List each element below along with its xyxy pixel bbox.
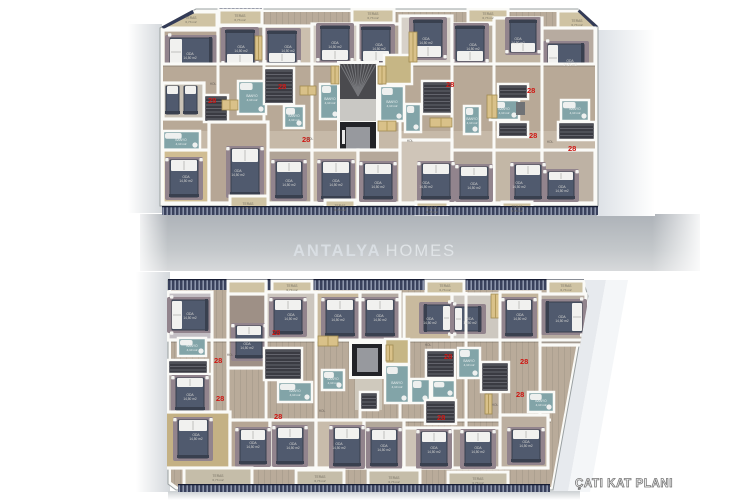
svg-text:14,50 m2: 14,50 m2 xyxy=(466,47,480,51)
svg-text:6,73 m2: 6,73 m2 xyxy=(286,288,297,292)
svg-text:HOL: HOL xyxy=(307,137,314,141)
svg-text:14,50 m2: 14,50 m2 xyxy=(372,47,386,51)
svg-text:4,10 m2: 4,10 m2 xyxy=(499,111,510,115)
svg-text:6,73 m2: 6,73 m2 xyxy=(367,16,378,20)
svg-text:HOL: HOL xyxy=(425,343,432,347)
svg-text:6,73 m2: 6,73 m2 xyxy=(314,479,325,483)
svg-text:28: 28 xyxy=(216,394,224,403)
svg-text:14,50 m2: 14,50 m2 xyxy=(234,49,248,53)
svg-text:28: 28 xyxy=(516,390,524,399)
svg-text:4,10 m2: 4,10 m2 xyxy=(387,104,398,108)
svg-text:14,50 m2: 14,50 m2 xyxy=(183,56,197,60)
svg-text:6,73 m2: 6,73 m2 xyxy=(439,288,450,292)
svg-text:14,50 m2: 14,50 m2 xyxy=(471,450,485,454)
svg-text:14,50 m2: 14,50 m2 xyxy=(419,41,433,45)
svg-text:14,50 m2: 14,50 m2 xyxy=(183,397,197,401)
svg-text:14,50 m2: 14,50 m2 xyxy=(332,446,346,450)
svg-text:14,50 m2: 14,50 m2 xyxy=(329,183,343,187)
svg-text:6,73 m2: 6,73 m2 xyxy=(571,23,582,27)
svg-text:4,10 m2: 4,10 m2 xyxy=(570,111,581,115)
svg-text:6,73 m2: 6,73 m2 xyxy=(511,209,522,213)
svg-text:14,50 m2: 14,50 m2 xyxy=(281,49,295,53)
svg-text:14,50 m2: 14,50 m2 xyxy=(427,450,441,454)
svg-text:28: 28 xyxy=(437,413,445,422)
svg-text:6,73 m2: 6,73 m2 xyxy=(212,478,223,482)
svg-text:6,73 m2: 6,73 m2 xyxy=(472,481,483,485)
svg-text:14,50 m2: 14,50 m2 xyxy=(377,448,391,452)
svg-text:28: 28 xyxy=(272,328,280,337)
svg-text:6,73 m2: 6,73 m2 xyxy=(388,480,399,484)
svg-text:14,50 m2: 14,50 m2 xyxy=(513,317,527,321)
svg-text:14,50 m2: 14,50 m2 xyxy=(328,45,342,49)
svg-text:28: 28 xyxy=(208,96,216,105)
svg-text:4,10 m2: 4,10 m2 xyxy=(325,101,336,105)
svg-text:14,50 m2: 14,50 m2 xyxy=(511,41,525,45)
svg-text:14,50 m2: 14,50 m2 xyxy=(286,446,300,450)
svg-text:14,50 m2: 14,50 m2 xyxy=(512,185,526,189)
svg-text:14,50 m2: 14,50 m2 xyxy=(189,437,203,441)
svg-text:4,10 m2: 4,10 m2 xyxy=(328,381,339,385)
svg-text:28: 28 xyxy=(520,357,528,366)
svg-text:4,10 m2: 4,10 m2 xyxy=(176,142,187,146)
svg-text:28: 28 xyxy=(278,82,286,91)
svg-text:6,73 m2: 6,73 m2 xyxy=(185,20,196,24)
svg-text:4,10 m2: 4,10 m2 xyxy=(467,121,478,125)
svg-text:14,50 m2: 14,50 m2 xyxy=(563,63,577,67)
svg-text:6,73 m2: 6,73 m2 xyxy=(560,288,571,292)
svg-text:HOL: HOL xyxy=(407,139,414,143)
svg-text:14,50 m2: 14,50 m2 xyxy=(371,185,385,189)
svg-text:14,50 m2: 14,50 m2 xyxy=(240,346,254,350)
svg-text:14,50 m2: 14,50 m2 xyxy=(231,173,245,177)
svg-text:28: 28 xyxy=(568,144,576,153)
svg-text:HOL: HOL xyxy=(547,140,554,144)
svg-text:ANTALYAHOMES: ANTALYAHOMES xyxy=(293,242,456,260)
svg-text:28: 28 xyxy=(529,131,537,140)
svg-text:HOL: HOL xyxy=(492,403,499,407)
svg-text:4,10 m2: 4,10 m2 xyxy=(536,403,547,407)
svg-text:6,73 m2: 6,73 m2 xyxy=(482,16,493,20)
svg-text:4,10 m2: 4,10 m2 xyxy=(187,348,198,352)
svg-text:HOL: HOL xyxy=(319,409,326,413)
svg-text:28: 28 xyxy=(444,352,452,361)
svg-text:14,50 m2: 14,50 m2 xyxy=(373,318,387,322)
svg-text:14,50 m2: 14,50 m2 xyxy=(555,319,569,323)
svg-text:28: 28 xyxy=(446,80,454,89)
svg-text:28: 28 xyxy=(274,412,282,421)
svg-text:6,73 m2: 6,73 m2 xyxy=(426,210,437,214)
svg-text:14,50 m2: 14,50 m2 xyxy=(282,183,296,187)
svg-text:4,10 m2: 4,10 m2 xyxy=(289,118,300,122)
svg-text:6,73 m2: 6,73 m2 xyxy=(334,208,345,212)
svg-text:HOL: HOL xyxy=(227,353,234,357)
svg-text:14,50 m2: 14,50 m2 xyxy=(179,179,193,183)
svg-text:HOL: HOL xyxy=(210,82,217,86)
svg-text:14,50 m2: 14,50 m2 xyxy=(423,321,437,325)
svg-text:14,50 m2: 14,50 m2 xyxy=(246,445,260,449)
svg-text:4,10 m2: 4,10 m2 xyxy=(290,393,301,397)
svg-text:4,10 m2: 4,10 m2 xyxy=(392,385,403,389)
svg-text:14,50 m2: 14,50 m2 xyxy=(183,316,197,320)
svg-text:28: 28 xyxy=(214,356,222,365)
svg-text:14,50 m2: 14,50 m2 xyxy=(331,318,345,322)
svg-text:4,10 m2: 4,10 m2 xyxy=(247,98,258,102)
svg-text:28: 28 xyxy=(527,86,535,95)
svg-text:14,50 m2: 14,50 m2 xyxy=(555,189,569,193)
svg-text:ÇATI KAT PLANI: ÇATI KAT PLANI xyxy=(575,478,673,490)
svg-text:4,10 m2: 4,10 m2 xyxy=(464,363,475,367)
svg-text:6,73 m2: 6,73 m2 xyxy=(242,206,253,210)
svg-text:14,50 m2: 14,50 m2 xyxy=(519,444,533,448)
svg-text:14,50 m2: 14,50 m2 xyxy=(467,186,481,190)
svg-text:14,50 m2: 14,50 m2 xyxy=(463,321,477,325)
svg-text:6,73 m2: 6,73 m2 xyxy=(234,18,245,22)
svg-text:14,50 m2: 14,50 m2 xyxy=(419,185,433,189)
svg-text:14,50 m2: 14,50 m2 xyxy=(284,317,298,321)
